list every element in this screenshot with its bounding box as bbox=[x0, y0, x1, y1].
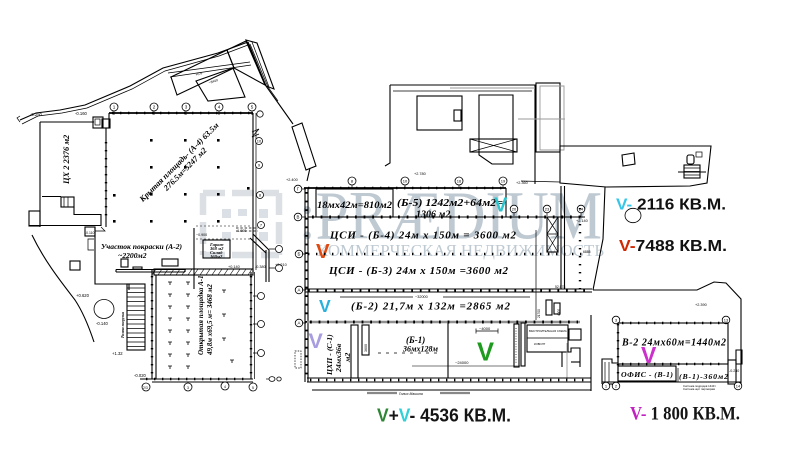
svg-text:-0.140: -0.140 bbox=[96, 321, 109, 326]
svg-text:-0.020: -0.020 bbox=[134, 373, 147, 378]
svg-text:В: В bbox=[297, 215, 300, 220]
svg-text:-0.250: -0.250 bbox=[30, 112, 43, 117]
svg-text:Рампа погрузки: Рампа погрузки bbox=[121, 312, 125, 338]
svg-text:5: 5 bbox=[252, 386, 254, 390]
svg-text:Система щит партнёрам: Система щит партнёрам bbox=[683, 387, 715, 391]
svg-text:ЦХП - (С-1): ЦХП - (С-1) bbox=[325, 334, 334, 376]
svg-text:V: V bbox=[494, 195, 508, 217]
svg-text:+2.360: +2.360 bbox=[516, 181, 528, 185]
svg-text:V: V bbox=[641, 342, 657, 368]
svg-text:(Б-1): (Б-1) bbox=[406, 335, 425, 345]
svg-text:~24000: ~24000 bbox=[455, 360, 469, 365]
svg-text:160м2: 160м2 bbox=[210, 254, 223, 259]
svg-text:+0.620: +0.620 bbox=[76, 293, 90, 298]
svg-text:~4000: ~4000 bbox=[479, 326, 491, 331]
svg-text:А: А bbox=[298, 321, 301, 326]
svg-text:Голых Машина: Голых Машина bbox=[399, 392, 423, 396]
svg-text:49,8м х69,5 м= 3468 м2: 49,8м х69,5 м= 3468 м2 bbox=[206, 284, 214, 356]
svg-text:52.078: 52.078 bbox=[555, 285, 565, 289]
svg-text:ВЫСТРОИТЕЛЬНАЯ СХЕМА: ВЫСТРОИТЕЛЬНАЯ СХЕМА bbox=[529, 329, 567, 333]
svg-text:3600: 3600 bbox=[364, 344, 368, 352]
svg-text:+2.400: +2.400 bbox=[286, 178, 298, 182]
svg-text:ЦСИ - (Б-4) 24м х 150м =: ЦСИ - (Б-4) 24м х 150м = 3600 м2 bbox=[329, 230, 517, 242]
svg-text:13: 13 bbox=[724, 318, 729, 323]
svg-text:+2.140: +2.140 bbox=[576, 219, 588, 223]
svg-text:V: V bbox=[319, 296, 331, 316]
svg-text:16: 16 bbox=[457, 179, 462, 184]
svg-text:18мх42м=810м2: 18мх42м=810м2 bbox=[317, 200, 392, 211]
svg-text:36мх128м: 36мх128м bbox=[402, 345, 438, 354]
svg-text:-0.110: -0.110 bbox=[85, 231, 94, 235]
svg-text:КОВОЛТ: КОВОЛТ bbox=[534, 342, 546, 346]
svg-text:+0.210: +0.210 bbox=[275, 263, 287, 267]
svg-text:~32000: ~32000 bbox=[415, 295, 428, 299]
svg-text:V: V bbox=[309, 329, 324, 353]
svg-text:ЦХ 2 2376 м2: ЦХ 2 2376 м2 bbox=[62, 135, 71, 185]
svg-text:+2.390: +2.390 bbox=[695, 303, 707, 307]
svg-text:-0.240: -0.240 bbox=[729, 369, 739, 373]
svg-text:1: 1 bbox=[113, 105, 116, 110]
svg-text:+1.32: +1.32 bbox=[112, 351, 123, 356]
svg-text:-0.160: -0.160 bbox=[75, 111, 88, 116]
svg-text:V: V bbox=[316, 240, 330, 263]
svg-text:10: 10 bbox=[403, 179, 408, 184]
svg-text:ЦСИ - (Б-3) 24м х 150м =: ЦСИ - (Б-3) 24м х 150м =3600 м2 bbox=[328, 265, 509, 277]
svg-text:ОФИС - (В-1): ОФИС - (В-1) bbox=[621, 370, 673, 379]
svg-text:4: 4 bbox=[218, 105, 221, 110]
svg-text:21700: 21700 bbox=[537, 309, 541, 318]
svg-text:10: 10 bbox=[257, 139, 262, 144]
svg-text:14: 14 bbox=[736, 384, 741, 389]
svg-text:1306 м2: 1306 м2 bbox=[416, 210, 450, 221]
svg-text:20: 20 bbox=[512, 207, 517, 212]
svg-text:23: 23 bbox=[545, 207, 550, 212]
svg-text:24мх36в: 24мх36в bbox=[334, 343, 343, 373]
svg-text:(Б-2) 21,7м х 132м =2865: (Б-2) 21,7м х 132м =2865 м2 bbox=[351, 301, 511, 313]
svg-text:4: 4 bbox=[224, 385, 226, 389]
svg-text:(В-1)-360м2: (В-1)-360м2 bbox=[679, 372, 728, 381]
svg-text:3: 3 bbox=[187, 386, 189, 390]
svg-text:Б: Б bbox=[298, 252, 301, 257]
svg-text:5: 5 bbox=[251, 105, 254, 110]
svg-text:19: 19 bbox=[501, 179, 506, 184]
svg-text:~0.900: ~0.900 bbox=[196, 233, 207, 237]
svg-text:2/3: 2/3 bbox=[143, 386, 148, 390]
svg-text:+2.780: +2.780 bbox=[414, 172, 426, 176]
svg-text:В-2 24мх60м=1440м2: В-2 24мх60м=1440м2 bbox=[621, 338, 726, 349]
svg-text:2: 2 bbox=[153, 105, 156, 110]
svg-text:-0.380: -0.380 bbox=[255, 265, 266, 269]
svg-text:Участок покраски (А-2): Участок покраски (А-2) bbox=[101, 242, 183, 251]
svg-text:V- 1 800 КВ.М.: V- 1 800 КВ.М. bbox=[630, 405, 740, 425]
svg-text:V-7488 КВ.М.: V-7488 КВ.М. bbox=[619, 238, 727, 255]
svg-text:Открытая площадка А-1: Открытая площадка А-1 bbox=[197, 275, 205, 355]
svg-text:6885: 6885 bbox=[583, 250, 591, 254]
svg-text:V+V- 4536 КВ.М.: V+V- 4536 КВ.М. bbox=[377, 406, 511, 426]
svg-text:3: 3 bbox=[185, 105, 188, 110]
svg-text:А: А bbox=[298, 288, 301, 293]
svg-text:(Б-5) 1242м2+64м2=: (Б-5) 1242м2+64м2= bbox=[397, 198, 503, 209]
svg-text:V: V bbox=[477, 339, 494, 367]
svg-text:+0.140: +0.140 bbox=[228, 265, 240, 269]
svg-text:4000: 4000 bbox=[557, 309, 561, 316]
